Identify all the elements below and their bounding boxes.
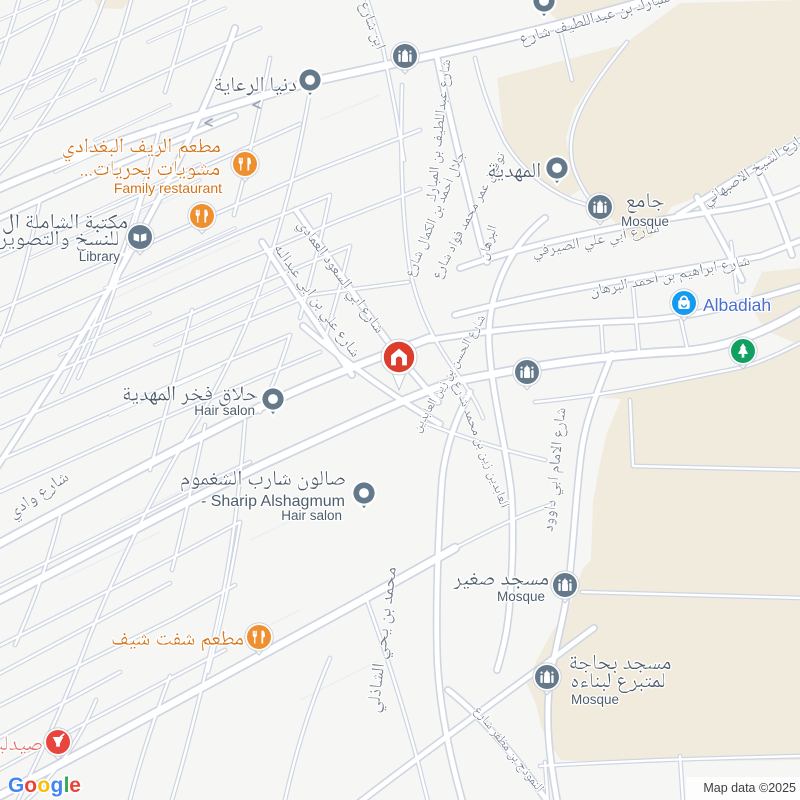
svg-text:Mosque: Mosque — [571, 692, 619, 707]
svg-text:Mosque: Mosque — [497, 589, 545, 604]
svg-text:o: o — [24, 774, 37, 797]
svg-text:g: g — [51, 774, 64, 797]
svg-text:Albadiah: Albadiah — [703, 295, 771, 315]
svg-text:Hair salon: Hair salon — [281, 508, 342, 523]
svg-text:G: G — [8, 774, 24, 797]
svg-text:Map data ©2025: Map data ©2025 — [703, 781, 796, 795]
svg-text:Library: Library — [79, 249, 121, 264]
svg-text:Family restaurant: Family restaurant — [114, 180, 222, 196]
svg-text:o: o — [37, 774, 50, 797]
svg-text:Mosque: Mosque — [621, 214, 669, 229]
svg-text:e: e — [69, 774, 81, 797]
svg-text:Hair salon: Hair salon — [194, 403, 255, 418]
